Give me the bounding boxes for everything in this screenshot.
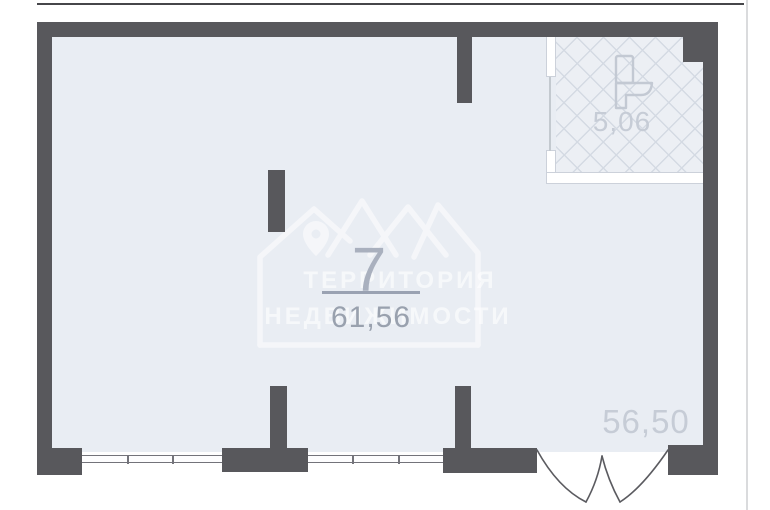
window-right	[308, 455, 443, 463]
bathroom-partition-bottom	[546, 172, 706, 184]
double-door-icon	[530, 444, 678, 510]
wall-stub-above-pier-1	[270, 386, 287, 448]
main-room-area-label: 61,56	[331, 301, 411, 335]
total-area-label: 56,50	[602, 403, 690, 441]
wall-bottom-pier-2	[443, 448, 537, 473]
right-rule-line	[746, 0, 748, 510]
window-mullion	[398, 455, 400, 464]
wall-bottom-left-block	[37, 448, 82, 475]
wall-stub-interior	[268, 170, 285, 232]
wall-stub-top-center	[457, 37, 472, 103]
window-mullion	[127, 455, 129, 464]
wall-bottom-pier-1	[222, 448, 308, 472]
wall-right	[703, 22, 718, 448]
window-mullion	[352, 455, 354, 464]
window-left	[82, 455, 222, 463]
top-rule-line	[37, 3, 744, 5]
toilet-icon	[600, 54, 654, 112]
room-number-underline	[322, 291, 420, 294]
bathroom-partition-left-top	[546, 37, 556, 77]
bathroom-area-label: 5,06	[593, 106, 652, 138]
floorplan-page: ТЕРРИТОРИЯ НЕДВИЖИМОСТИ 7 61,56 5,06 56,…	[0, 0, 770, 510]
window-mullion	[172, 455, 174, 464]
wall-stub-above-pier-2	[455, 386, 471, 448]
wall-left	[37, 22, 52, 448]
wall-top-right-notch	[683, 37, 718, 62]
bathroom-door-opening	[549, 77, 551, 151]
room-number-label: 7	[352, 235, 386, 306]
pin-icon	[303, 221, 329, 256]
wall-top	[37, 22, 718, 37]
